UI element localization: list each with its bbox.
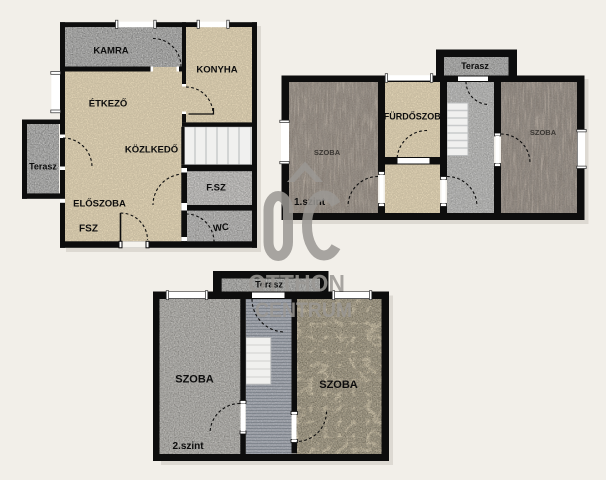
svg-text:ÉTKEZŐ: ÉTKEZŐ bbox=[89, 98, 128, 110]
svg-text:FSZ: FSZ bbox=[79, 224, 98, 235]
svg-text:ELŐSZOBA: ELŐSZOBA bbox=[73, 198, 126, 210]
svg-text:SZOBA: SZOBA bbox=[530, 128, 557, 137]
svg-text:WC: WC bbox=[213, 222, 230, 235]
svg-text:CENTRUM: CENTRUM bbox=[255, 299, 352, 322]
svg-text:Terasz: Terasz bbox=[461, 61, 489, 71]
svg-text:KAMRA: KAMRA bbox=[93, 46, 128, 57]
svg-text:OTTHON: OTTHON bbox=[248, 271, 345, 298]
svg-text:F.SZ: F.SZ bbox=[206, 183, 226, 194]
svg-text:FÜRDŐSZOBA: FÜRDŐSZOBA bbox=[384, 111, 448, 122]
svg-text:Terasz: Terasz bbox=[29, 162, 57, 172]
svg-text:KÖZLKEDŐ: KÖZLKEDŐ bbox=[125, 144, 178, 156]
svg-text:2.szint: 2.szint bbox=[173, 441, 205, 452]
svg-text:SZOBA: SZOBA bbox=[175, 374, 214, 386]
svg-text:SZOBA: SZOBA bbox=[319, 379, 358, 391]
svg-text:KONYHA: KONYHA bbox=[196, 65, 237, 76]
svg-text:SZOBA: SZOBA bbox=[314, 148, 341, 157]
